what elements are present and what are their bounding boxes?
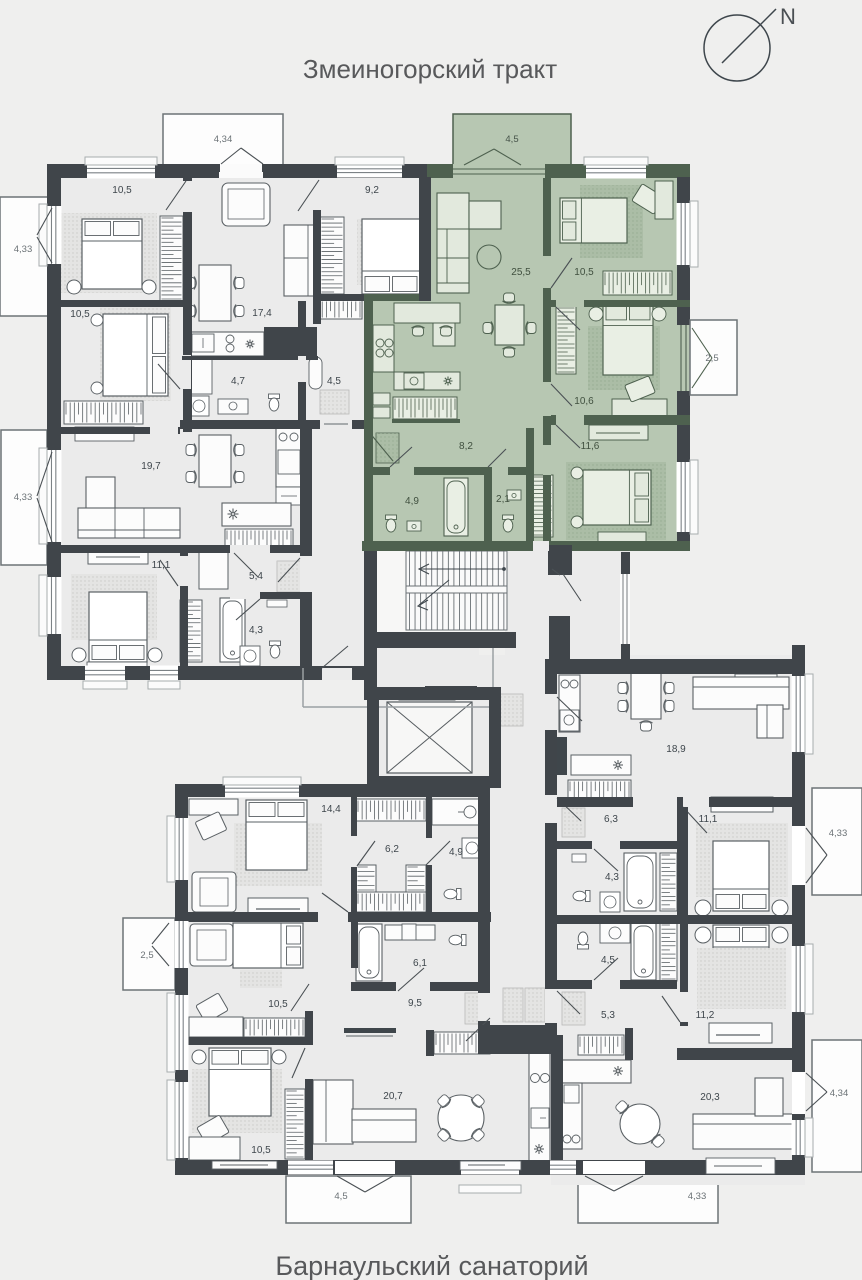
svg-text:5,3: 5,3 bbox=[601, 1010, 615, 1021]
svg-text:4,7: 4,7 bbox=[231, 376, 245, 387]
svg-text:10,5: 10,5 bbox=[112, 185, 132, 196]
svg-text:19,7: 19,7 bbox=[141, 461, 161, 472]
svg-text:9,5: 9,5 bbox=[408, 998, 422, 1009]
svg-text:8,2: 8,2 bbox=[459, 441, 473, 452]
svg-text:4,5: 4,5 bbox=[505, 134, 518, 145]
svg-text:2,1: 2,1 bbox=[496, 494, 510, 505]
svg-text:9,2: 9,2 bbox=[365, 185, 379, 196]
svg-text:N: N bbox=[780, 4, 796, 29]
svg-text:18,9: 18,9 bbox=[666, 744, 686, 755]
svg-text:4,33: 4,33 bbox=[688, 1191, 707, 1202]
svg-text:5,4: 5,4 bbox=[249, 571, 263, 582]
svg-text:11,6: 11,6 bbox=[581, 441, 600, 452]
svg-text:6,2: 6,2 bbox=[385, 844, 399, 855]
svg-text:4,3: 4,3 bbox=[605, 872, 619, 883]
svg-text:10,6: 10,6 bbox=[574, 396, 594, 407]
svg-text:4,9: 4,9 bbox=[405, 496, 419, 507]
svg-text:4,9: 4,9 bbox=[449, 847, 463, 858]
svg-text:10,5: 10,5 bbox=[574, 267, 594, 278]
svg-text:6,3: 6,3 bbox=[604, 814, 618, 825]
svg-text:14,4: 14,4 bbox=[321, 804, 341, 815]
svg-text:4,5: 4,5 bbox=[334, 1191, 347, 1202]
svg-text:Барнаульский санаторий: Барнаульский санаторий bbox=[275, 1251, 588, 1280]
svg-text:4,33: 4,33 bbox=[829, 828, 848, 839]
svg-text:4,5: 4,5 bbox=[601, 955, 615, 966]
svg-text:25,5: 25,5 bbox=[511, 267, 531, 278]
svg-text:4,33: 4,33 bbox=[14, 492, 33, 503]
svg-text:20,3: 20,3 bbox=[700, 1092, 720, 1103]
svg-text:10,5: 10,5 bbox=[268, 999, 288, 1010]
svg-text:4,5: 4,5 bbox=[327, 376, 341, 387]
svg-text:11,1: 11,1 bbox=[699, 814, 718, 825]
svg-text:10,5: 10,5 bbox=[70, 309, 90, 320]
svg-text:4,3: 4,3 bbox=[249, 625, 263, 636]
svg-text:4,34: 4,34 bbox=[214, 134, 233, 145]
svg-text:11,2: 11,2 bbox=[696, 1010, 715, 1021]
svg-text:Змеиногорский тракт: Змеиногорский тракт bbox=[303, 54, 557, 84]
svg-text:4,33: 4,33 bbox=[14, 244, 33, 255]
svg-text:10,5: 10,5 bbox=[251, 1145, 271, 1156]
svg-text:20,7: 20,7 bbox=[383, 1091, 403, 1102]
svg-text:17,4: 17,4 bbox=[252, 308, 272, 319]
svg-text:6,1: 6,1 bbox=[413, 958, 427, 969]
svg-text:4,34: 4,34 bbox=[830, 1088, 849, 1099]
svg-text:2,5: 2,5 bbox=[140, 950, 153, 961]
svg-text:11,1: 11,1 bbox=[152, 560, 171, 571]
